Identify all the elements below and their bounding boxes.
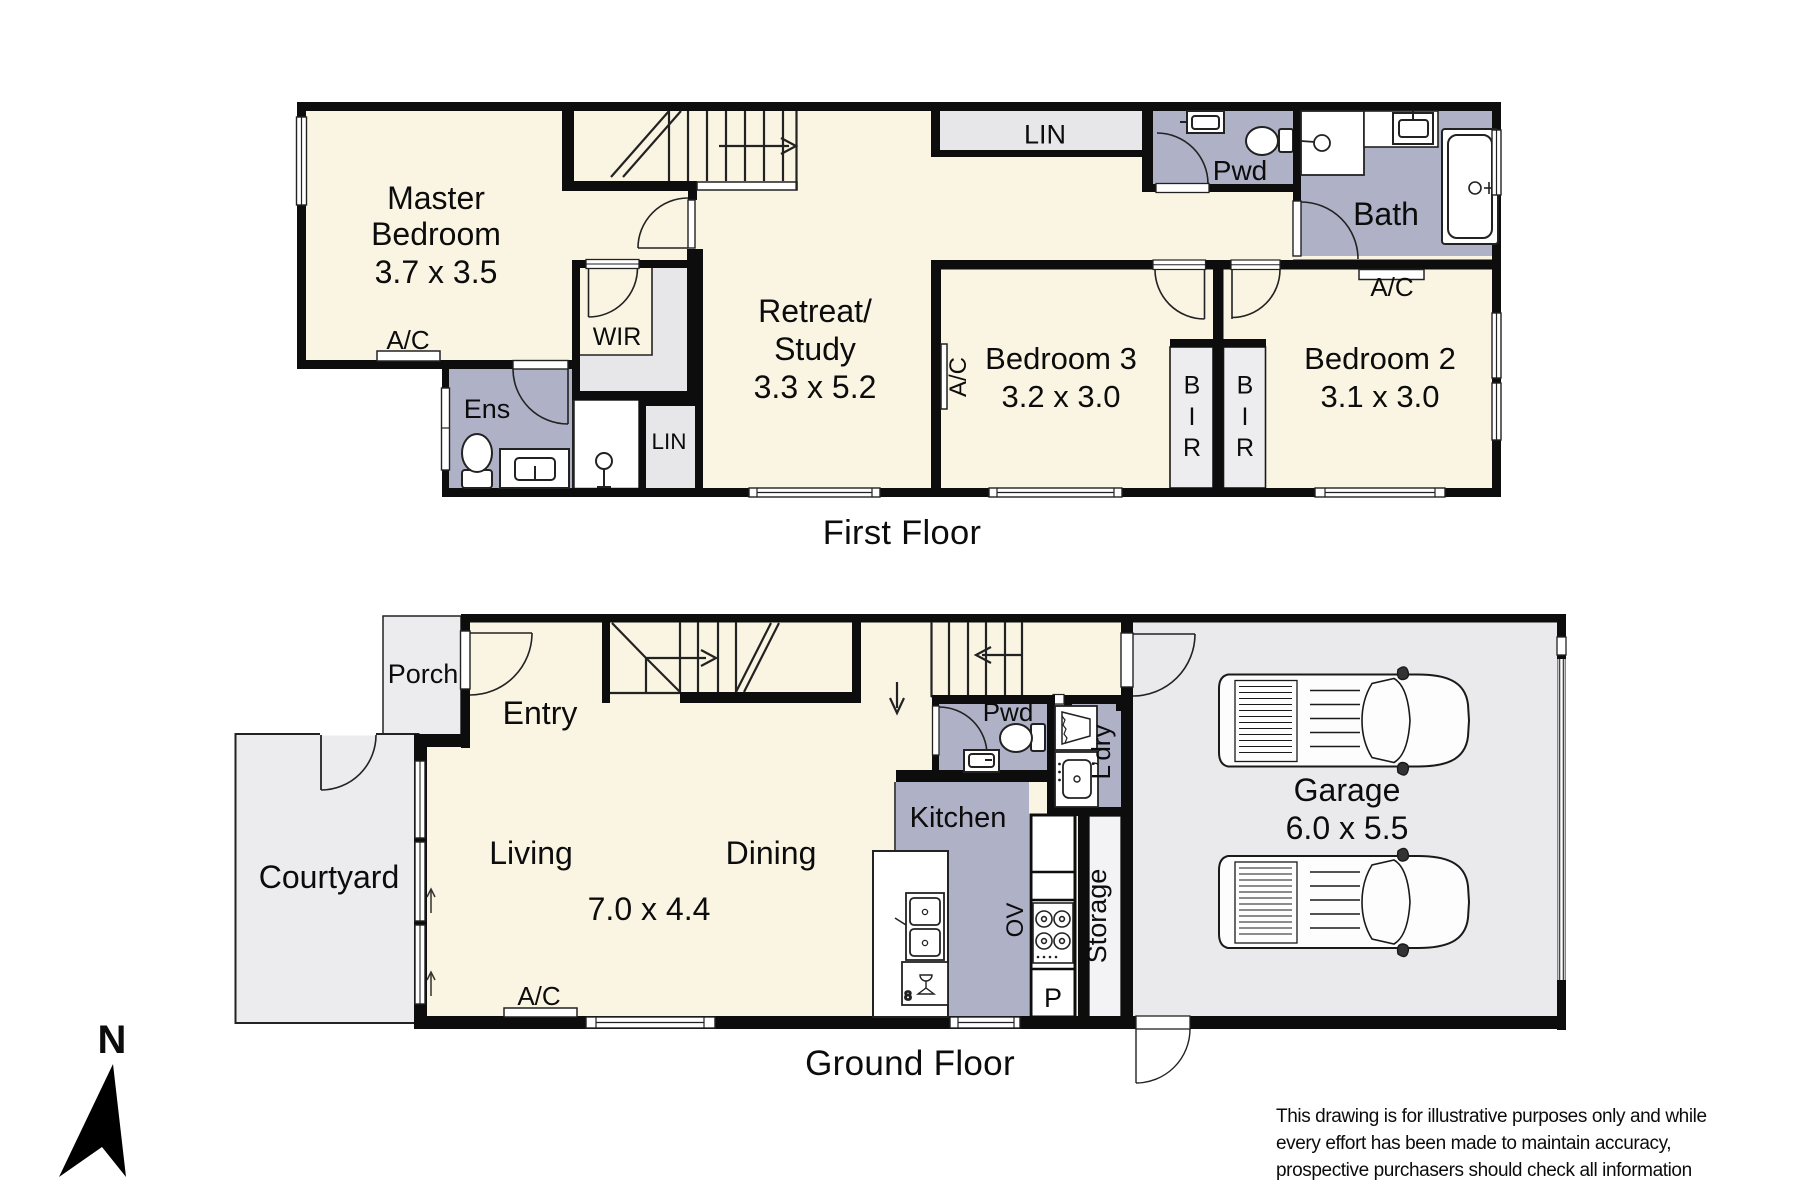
- svg-text:every effort has been made to: every effort has been made to maintain a…: [1276, 1133, 1671, 1154]
- svg-text:R: R: [1183, 434, 1201, 462]
- svg-text:L’dry: L’dry: [1086, 725, 1116, 780]
- svg-text:3.2 x 3.0: 3.2 x 3.0: [1002, 379, 1121, 414]
- svg-text:Garage: Garage: [1294, 772, 1401, 808]
- svg-text:A/C: A/C: [1370, 272, 1413, 302]
- svg-text:Ground Floor: Ground Floor: [805, 1044, 1015, 1083]
- svg-text:I: I: [1242, 403, 1249, 431]
- svg-text:LIN: LIN: [1024, 120, 1066, 150]
- svg-text:Entry: Entry: [503, 695, 578, 731]
- svg-text:3.3 x 5.2: 3.3 x 5.2: [754, 369, 877, 405]
- svg-text:6.0 x 5.5: 6.0 x 5.5: [1286, 810, 1409, 846]
- svg-text:Porch: Porch: [388, 659, 459, 689]
- svg-text:Ens: Ens: [464, 394, 511, 424]
- svg-text:R: R: [1236, 434, 1254, 462]
- svg-text:P: P: [1044, 983, 1062, 1013]
- svg-text:First Floor: First Floor: [823, 514, 982, 552]
- svg-text:Bedroom: Bedroom: [371, 216, 501, 252]
- svg-text:OV: OV: [1002, 903, 1029, 938]
- svg-text:3.1 x 3.0: 3.1 x 3.0: [1321, 379, 1440, 414]
- svg-text:A/C: A/C: [386, 325, 429, 355]
- svg-text:B: B: [1237, 372, 1254, 400]
- svg-text:prospective purchasers should: prospective purchasers should check all …: [1276, 1160, 1692, 1181]
- svg-text:A/C: A/C: [945, 357, 972, 397]
- svg-text:Bath: Bath: [1353, 196, 1419, 232]
- svg-text:3.7 x 3.5: 3.7 x 3.5: [375, 254, 498, 290]
- svg-text:LIN: LIN: [651, 429, 686, 454]
- svg-text:A/C: A/C: [517, 981, 560, 1011]
- svg-text:N: N: [98, 1018, 127, 1062]
- svg-text:Master: Master: [387, 180, 485, 216]
- svg-text:WIR: WIR: [593, 323, 642, 351]
- svg-text:B: B: [1184, 372, 1201, 400]
- svg-text:Kitchen: Kitchen: [910, 802, 1007, 834]
- svg-text:7.0 x 4.4: 7.0 x 4.4: [588, 891, 711, 927]
- svg-text:This drawing is for illustrati: This drawing is for illustrative purpose…: [1276, 1106, 1707, 1127]
- svg-text:Dining: Dining: [726, 835, 817, 871]
- svg-text:Bedroom 3: Bedroom 3: [985, 341, 1137, 376]
- svg-text:Living: Living: [489, 835, 573, 871]
- svg-text:Bedroom 2: Bedroom 2: [1304, 341, 1456, 376]
- svg-text:Courtyard: Courtyard: [259, 859, 400, 895]
- svg-text:8: 8: [904, 988, 911, 1003]
- svg-text:I: I: [1189, 403, 1196, 431]
- svg-text:Storage: Storage: [1082, 869, 1112, 964]
- svg-text:Study: Study: [774, 331, 856, 367]
- svg-text:Retreat/: Retreat/: [758, 293, 872, 329]
- svg-text:Pwd: Pwd: [1213, 155, 1267, 186]
- svg-text:Pwd: Pwd: [983, 697, 1034, 727]
